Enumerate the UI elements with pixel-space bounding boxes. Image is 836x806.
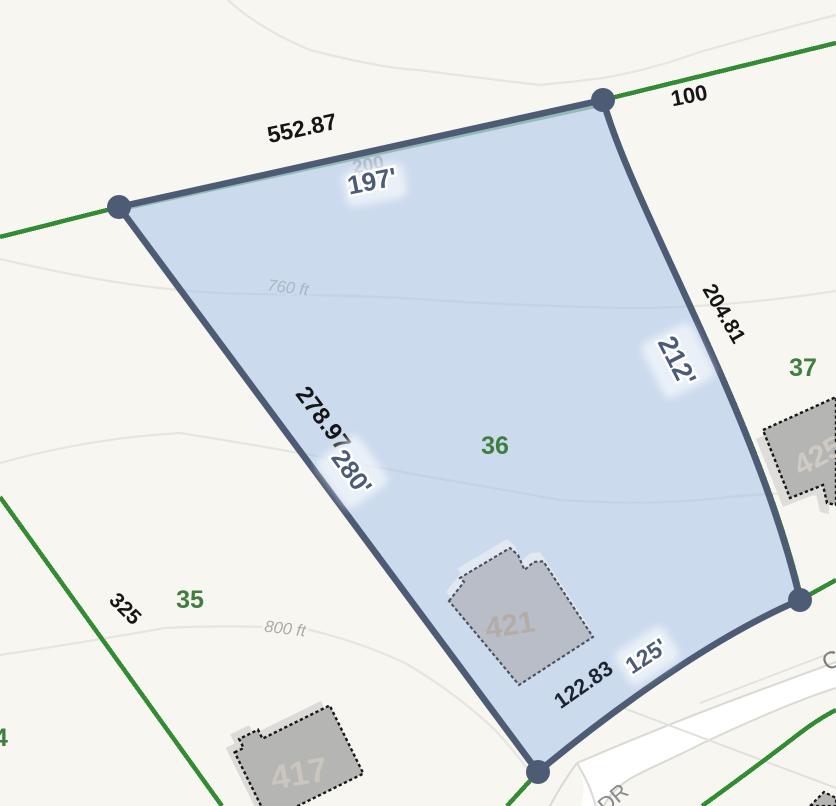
svg-text:36: 36	[481, 432, 509, 460]
svg-text:35: 35	[176, 586, 204, 614]
svg-text:4: 4	[0, 724, 8, 752]
svg-text:37: 37	[789, 354, 817, 382]
